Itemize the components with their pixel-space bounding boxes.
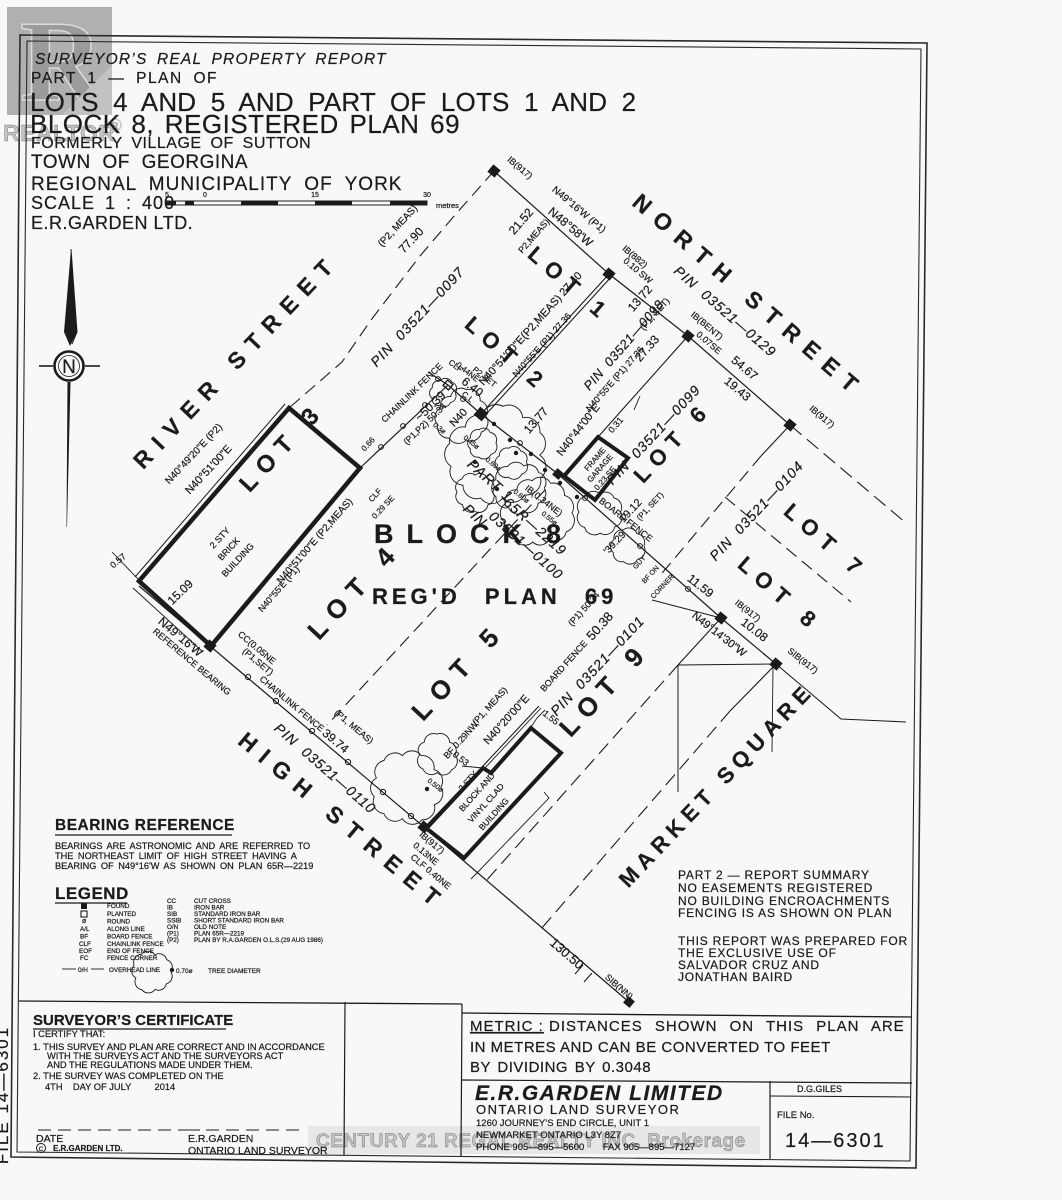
svg-text:END OF FENCE: END OF FENCE <box>107 948 154 955</box>
svg-text:E.R.GARDEN: E.R.GARDEN <box>188 1133 253 1145</box>
svg-text:FC: FC <box>80 955 89 962</box>
svg-text:GUY: GUY <box>632 555 648 571</box>
svg-text:N40°55'E (P1): N40°55'E (P1) <box>256 564 301 614</box>
svg-text:LOT 5: LOT 5 <box>405 615 511 726</box>
svg-text:NO EASEMENTS REGISTERED: NO EASEMENTS REGISTERED <box>678 881 873 895</box>
svg-text:30: 30 <box>423 192 431 199</box>
svg-text:BY DIVIDING BY 0.3048: BY DIVIDING BY 0.3048 <box>470 1059 651 1076</box>
svg-text:BF ON: BF ON <box>641 565 661 585</box>
svg-text:BF: BF <box>80 934 88 941</box>
svg-text:CLF: CLF <box>79 941 91 948</box>
svg-text:RIVER STREET: RIVER STREET <box>128 247 345 473</box>
svg-text:4TH DAY OF JULY 2: 4TH DAY OF JULY 2014 <box>45 1082 175 1092</box>
svg-text:SIB(NN): SIB(NN) <box>603 972 635 1002</box>
svg-text:N: N <box>62 357 76 378</box>
svg-text:13.77: 13.77 <box>521 404 551 436</box>
svg-text:SCALE 1 : 400: SCALE 1 : 400 <box>31 193 175 213</box>
svg-text:ALONG LINE: ALONG LINE <box>107 926 145 933</box>
svg-text:metres: metres <box>436 201 459 210</box>
svg-text:OVERHEAD LINE: OVERHEAD LINE <box>109 967 160 974</box>
svg-text:FENCE CORNER: FENCE CORNER <box>107 955 158 962</box>
svg-text:FORMERLY VILLAGE OF SUTTON: FORMERLY VILLAGE OF SUTTON <box>31 135 311 152</box>
svg-text:14—6301: 14—6301 <box>785 1130 886 1152</box>
svg-text:TREE DIAMETER: TREE DIAMETER <box>208 968 261 975</box>
svg-text:BOARD FENCE: BOARD FENCE <box>107 934 152 941</box>
svg-text:0.45ø: 0.45ø <box>462 435 481 452</box>
svg-text:5: 5 <box>165 192 169 199</box>
svg-text:2. THE SURVEY WAS COMPLETE: 2. THE SURVEY WAS COMPLETED ON THE <box>33 1071 224 1081</box>
svg-text:IB(917): IB(917) <box>505 154 534 181</box>
svg-text:PLAN BY R.A.GARDEN O.L.S.(2: PLAN BY R.A.GARDEN O.L.S.(29 AUG 1986) <box>194 937 323 944</box>
svg-text:BEARING OF N49°16'W AS SHOWN O: BEARING OF N49°16'W AS SHOWN ON PLAN 65R… <box>55 861 313 871</box>
svg-text:15.09: 15.09 <box>165 576 197 607</box>
svg-text:0.31: 0.31 <box>606 415 625 435</box>
svg-text:N40°44'00"E: N40°44'00"E <box>555 402 603 459</box>
svg-text:AND THE REGULATIONS MADE U: AND THE REGULATIONS MADE UNDER THEM. <box>47 1060 253 1070</box>
svg-text:130.50: 130.50 <box>547 935 587 972</box>
svg-text:CORNER: CORNER <box>650 573 676 600</box>
svg-text:(P2): (P2) <box>167 937 179 944</box>
svg-text:PART 2 — REPORT SUMMARY: PART 2 — REPORT SUMMARY <box>678 868 870 882</box>
svg-text:SIB(917): SIB(917) <box>786 646 820 676</box>
svg-text:LOT 7: LOT 7 <box>779 498 873 584</box>
svg-text:0.70ø: 0.70ø <box>176 968 193 975</box>
svg-text:SURVEYOR’S CERTIFICATE: SURVEYOR’S CERTIFICATE <box>33 1012 233 1029</box>
svg-text:IB(917): IB(917) <box>807 403 836 430</box>
svg-text:11.59: 11.59 <box>685 571 717 600</box>
svg-text:CLF: CLF <box>367 487 384 504</box>
svg-text:BEARINGS ARE ASTRONOMIC AND AR: BEARINGS ARE ASTRONOMIC AND ARE REFERRED… <box>55 841 310 851</box>
svg-text:ONTARIO LAND SURVEYOR: ONTARIO LAND SURVEYOR <box>188 1145 328 1157</box>
svg-text:NEWMARKET ONTARIO L3Y 8Z7: NEWMARKET ONTARIO L3Y 8Z7 <box>476 1130 621 1141</box>
svg-text:LOT 3: LOT 3 <box>234 396 331 497</box>
svg-text:E.R.GARDEN LTD.: E.R.GARDEN LTD. <box>53 1144 123 1153</box>
svg-text:FILE No.: FILE No. <box>777 1110 815 1121</box>
svg-text:PIN 03521—0097: PIN 03521—0097 <box>367 263 468 369</box>
svg-text:TOWN OF GEORGINA: TOWN OF GEORGINA <box>31 152 248 173</box>
svg-text:REGIONAL MUNICIPALITY OF YORK: REGIONAL MUNICIPALITY OF YORK <box>31 174 402 195</box>
svg-text:PLANTED: PLANTED <box>107 911 136 918</box>
svg-text:THE NORTHEAST LIMIT OF HIGH ST: THE NORTHEAST LIMIT OF HIGH STREET HAVIN… <box>55 851 298 861</box>
svg-text:1260 JOURNEY’S END CIRCLE,: 1260 JOURNEY’S END CIRCLE, UNIT 1 <box>476 1118 649 1129</box>
svg-text:ø: ø <box>82 918 87 925</box>
svg-text:0.53: 0.53 <box>451 749 471 768</box>
svg-text:SURVEYOR’S REAL PROPERTY REPOR: SURVEYOR’S REAL PROPERTY REPORT <box>35 51 387 68</box>
svg-text:MARKET SQUARE: MARKET SQUARE <box>614 677 820 892</box>
svg-text:0.50ø: 0.50ø <box>426 778 445 795</box>
svg-text:JONATHAN BAIRD: JONATHAN BAIRD <box>678 970 793 984</box>
svg-text:E.R.GARDEN LTD.: E.R.GARDEN LTD. <box>31 213 193 233</box>
svg-text:C: C <box>39 1146 44 1153</box>
svg-text:EOF: EOF <box>79 948 92 955</box>
svg-text:LEGEND: LEGEND <box>55 884 129 903</box>
svg-text:0.3ø: 0.3ø <box>431 422 447 437</box>
svg-text:N40: N40 <box>448 406 471 429</box>
svg-text:FILE 14—6301: FILE 14—6301 <box>0 1026 12 1164</box>
svg-text:0/H: 0/H <box>78 967 88 974</box>
svg-text:ONTARIO LAND SURVEYOR: ONTARIO LAND SURVEYOR <box>476 1102 680 1117</box>
svg-text:0.57: 0.57 <box>108 551 128 570</box>
svg-text:DISTANCES SHOWN ON THIS PL: DISTANCES SHOWN ON THIS PLAN ARE <box>549 1018 905 1035</box>
svg-text:FOUND: FOUND <box>107 903 130 910</box>
svg-text:IN METRES AND CAN BE CONV: IN METRES AND CAN BE CONVERTED TO FEET <box>470 1039 831 1056</box>
svg-text:METRIC :: METRIC : <box>470 1018 544 1035</box>
svg-text:D.G.GILES: D.G.GILES <box>797 1084 842 1094</box>
svg-text:PART 1 — PLAN OF: PART 1 — PLAN OF <box>31 70 218 87</box>
svg-text:0: 0 <box>203 192 207 199</box>
svg-text:PHONE 905—895—5600 FAX: PHONE 905—895—5600 FAX 905—895—7127 <box>476 1142 695 1153</box>
svg-text:I CERTIFY THAT:: I CERTIFY THAT: <box>33 1029 105 1039</box>
svg-text:CHAINLINK FENCE: CHAINLINK FENCE <box>107 941 164 948</box>
svg-text:A/L: A/L <box>80 926 90 933</box>
svg-text:0.66: 0.66 <box>360 435 378 453</box>
svg-text:FENCING IS AS SHOWN ON PLAN: FENCING IS AS SHOWN ON PLAN <box>678 906 892 920</box>
svg-text:CHAINLINK FENCE: CHAINLINK FENCE <box>258 674 326 734</box>
svg-text:15: 15 <box>311 192 319 199</box>
svg-text:BEARING REFERENCE: BEARING REFERENCE <box>55 817 235 834</box>
svg-text:ROUND: ROUND <box>107 919 131 926</box>
